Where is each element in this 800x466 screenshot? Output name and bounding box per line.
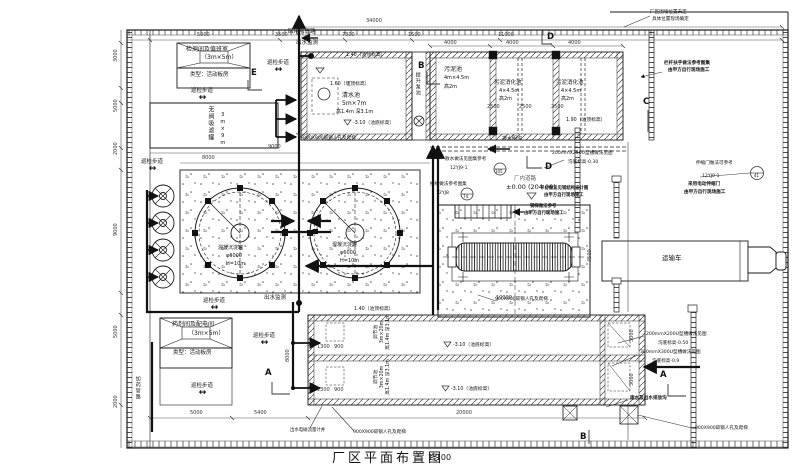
dim-4000-1: 4000 [444,41,457,46]
dim-8000: 8000 [202,156,215,161]
label-digestion-1-h: 高2m [499,97,512,103]
label-lift-pump: 提升泵池 [414,72,420,96]
dim-20000: 20000 [456,411,472,416]
drawing-scale: 1:100 [428,453,451,462]
dim-2000-left1: 2000 [114,142,119,155]
label-dosing-pipe: 加药管路 [134,376,140,400]
dim-1500: 1500 [408,33,421,38]
label-clear-water-size: 5m×7m [342,101,366,108]
dim-3000-r2: 3000 [630,373,635,386]
level-bottom-cw: -3.10（池底标高） [353,121,394,127]
blower-units [152,185,174,288]
dim-2500-2: 2500 [519,105,532,110]
label-drain-ditch: 排水明沟 [502,137,522,143]
dim-9000: 9000 [268,145,281,150]
note-u200-1: 200mmX200U型槽做法见图 [646,332,707,337]
note-fence-1: 厂区围墙位置未定 [650,10,687,15]
note-plat-2: 由甲方自行现场施工 [544,193,584,198]
label-no-valve-filter-size: 3m×9m [219,112,225,147]
walkway-label: 巡检步道↔ [184,89,220,101]
label-coag-2-h: H=10m [340,259,359,265]
section-marker-c: C [643,98,649,108]
section-marker-b-bottom: B [580,433,586,443]
dim-3000-left: 3000 [114,49,119,62]
label-digestion-1: 污泥消化池 [494,80,522,86]
label-outlet-monitor-top: 出水监测 [296,40,318,46]
dim-2000-left2: 2000 [114,395,119,408]
section-marker-b-top: B [418,62,424,72]
walkway-label: 巡检步道↔ [246,334,282,346]
note-u300-1: 300mmX300U型槽做法见图 [640,350,701,355]
label-digestion-2-h: 高2m [561,97,574,103]
label-dosing-room: 药剂间及配电间 [172,322,214,329]
walkway-label: 巡检步道↔ [260,61,296,73]
dim-9000-left: 9000 [114,223,119,236]
dim-1300-1: 1300 [317,345,330,350]
level-bottom-eq1: -3.10（池底标高） [453,343,494,349]
dim-8000-r: 8000 [286,349,291,362]
walkway-label: 巡检步道↔ [184,384,220,396]
label-digestion-1-size: 4×4.5m [499,89,519,95]
walkway-label: 巡检步道↔ [134,160,170,172]
dim-900-2: 900 [334,388,344,393]
dim-5000-bottom: 5000 [190,411,203,416]
note-steel-1: 钢梯做法参考 [530,204,556,209]
dewatering-machine [443,243,585,271]
label-manhole-1: 900X900碳钢人孔及爬梯 [303,136,356,141]
double-arrow-icon: ↔ [134,166,170,172]
note-stair-ref: 12YJ8 [436,191,449,196]
transport-truck [602,241,786,281]
dim-4500: 4500 [588,249,593,262]
note-splash-no: 105 [495,170,503,175]
label-outlet-monitor-bottom: 出水监测 [264,295,286,301]
no-valve-filter-outline [150,103,278,148]
dim-5000-top: 5000 [197,33,210,38]
double-arrow-icon: ↔ [260,67,296,73]
label-sludge-tank: 污泥池 [444,67,462,74]
walkway-label: 巡检步道↔ [196,299,232,311]
note-fence-2: 具体位置现场确定 [652,17,689,22]
section-marker-d-top: D [547,33,554,43]
note-u300-2: 沟底标高-0.9 [652,359,679,364]
note-egate-1: 采用电动伸缩门 [688,182,720,187]
double-arrow-icon: ↔ [196,305,232,311]
dim-4000-3: 4000 [568,41,581,46]
label-coag-1-d: φ6000 [226,254,242,260]
note-egate-2: 由甲方自行现场施工 [684,190,725,195]
label-coag-1-h: H=10m [226,262,245,268]
dim-34000: 34000 [366,19,382,24]
note-steel-2: 由甲方自行现场施工 [524,211,564,216]
dim-5000-left1: 5000 [114,99,119,112]
outlet-structures [563,406,638,424]
label-coag-2: 混凝沉淀罐 [332,243,357,249]
note-rain: 雨水及出水排放沟 [630,396,667,401]
note-gate-no: 41 [754,174,759,179]
dim-7300: 7300 [342,33,355,38]
label-digestion-2-size: 4×4.5m [561,89,581,95]
section-marker-a-right: A [660,371,667,381]
level-weir: 1.60（堰顶标高） [330,82,369,88]
label-flow-meter: 出水电磁流量计井 [290,428,332,433]
fence-drain-lines [575,30,697,448]
dim-3500: 3500 [275,33,288,38]
label-manhole-4: 900X900碳钢人孔及爬梯 [695,426,748,431]
label-transport-truck: 运输车 [662,255,682,262]
section-marker-a-left: A [265,369,272,379]
label-inspection-room-size: （3m×5m） [201,55,237,62]
label-inspection-room: 检测间及值班室 [186,47,228,54]
dim-11000: 11000 [498,33,514,38]
section-marker-d-mid: D [545,163,552,173]
label-reuse-pipe: 回用水管路 [288,29,316,35]
dim-5400: 5400 [254,411,267,416]
label-eq-tank-2: 调节池3m×20m高1.4m 深3.1m [374,345,392,409]
note-gate-ref: 12YJ9-1 [702,174,720,179]
dim-3000-r1: 3000 [630,329,635,342]
note-u250-2: 沟底标高-0.30 [568,160,598,165]
label-panel-house-2: 类型：活动板房 [173,350,212,356]
note-stair-1: 楼梯做法参考图集 [430,182,467,187]
plant-layout-drawing: 厂区平面布置图 1:100 检测间及值班室 （3m×5m） 类型：活动板房 药剂… [0,0,800,466]
note-gate-1: 伸缩门做法可参考 [696,161,733,166]
note-splash-ref: 12YJ9-1 [450,166,468,171]
label-manhole-3: 900X900碳钢人孔及爬梯 [353,430,406,435]
dim-4000-2: 4000 [506,41,519,46]
dim-10000: 10000 [496,296,512,301]
note-stair-no: 74 [463,195,468,200]
level-sludge-top: 1.90（池顶标高） [566,118,605,124]
label-clear-water: 清水池 [342,93,360,100]
note-rail-1: 栏杆扶手做法参考图集 [664,61,710,66]
dim-2500-1: 2500 [487,105,500,110]
level-bottom-eq2: -3.10（池底标高） [451,387,492,393]
note-u200-2: 沟底标高-0.50 [658,341,688,346]
steel-stair [455,205,511,218]
label-dosing-room-size: （3m×5m） [188,331,224,338]
level-pool-top-2: 1.40（池顶标高） [354,307,393,313]
dim-900-1: 900 [334,345,344,350]
label-sludge-tank-h: 高2m [444,85,457,91]
dim-2500-3: 2500 [551,105,564,110]
level-pool-top-1: 1.40（池顶标高） [346,53,385,59]
label-clear-water-hd: 高1.4m 深3.1m [336,110,373,116]
note-plat-1: 平台做法见钢结构设计图 [540,186,588,191]
double-arrow-icon: ↔ [184,95,220,101]
label-sludge-tank-size: 4m×4.5m [444,76,469,82]
dim-5000-left2: 5000 [114,325,119,338]
double-arrow-icon: ↔ [184,390,220,396]
label-panel-house-1: 类型：活动板房 [190,72,229,78]
note-rail-2: 由甲方自行现场施工 [668,68,709,73]
dim-1300-2: 1300 [317,388,330,393]
note-splash-1: 散水做法见图集参考 [445,157,486,162]
label-coag-2-d: φ6000 [340,251,356,257]
note-u250-1: 200mmX250U型槽做法见图 [552,151,613,156]
section-marker-e: E [251,69,257,79]
double-arrow-icon: ↔ [246,340,282,346]
label-no-valve-filter: 无阀吸滤罐 [206,106,213,141]
label-road: 厂内道路 [514,176,536,182]
label-digestion-2: 污泥消化池 [556,80,584,86]
label-coag-1: 混凝沉淀罐 [218,246,243,252]
